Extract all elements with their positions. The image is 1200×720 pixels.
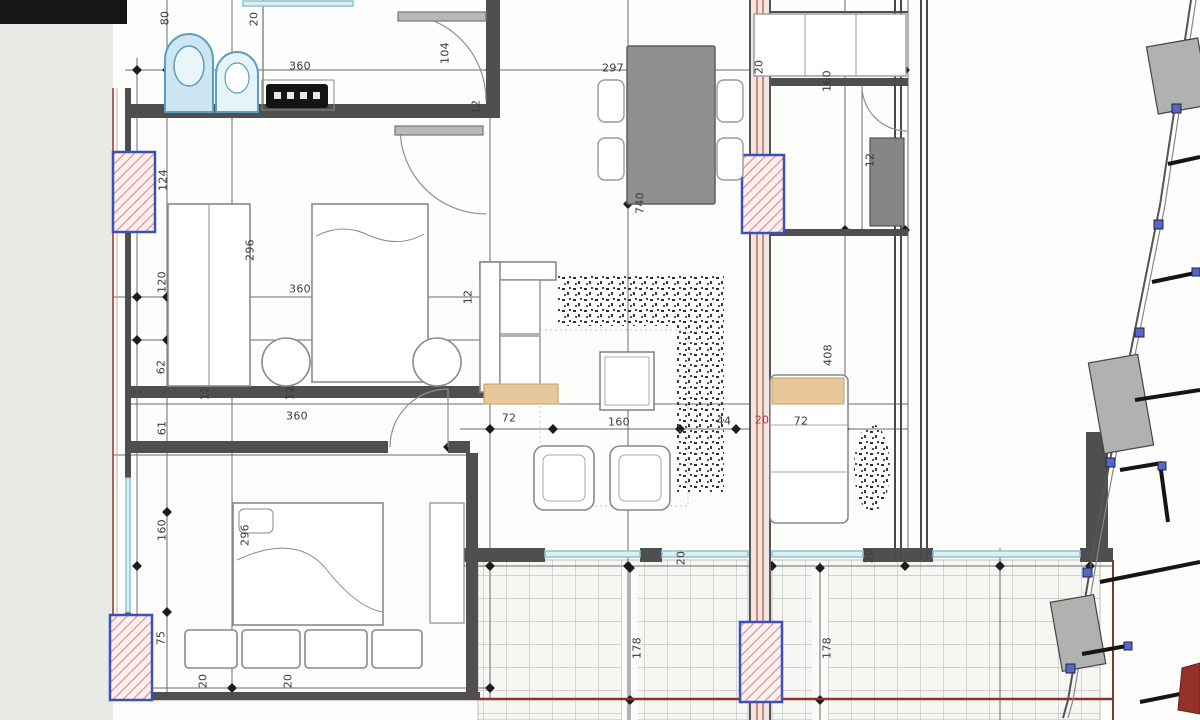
plant bbox=[854, 424, 890, 512]
chair bbox=[717, 138, 743, 180]
closet bbox=[430, 503, 464, 623]
coffee-table bbox=[600, 352, 654, 410]
highlighted-unit-red bbox=[1178, 663, 1200, 714]
bedroom1-furniture bbox=[168, 204, 461, 386]
left-margin bbox=[0, 24, 113, 720]
chair bbox=[598, 80, 624, 122]
top-left-dark-bar bbox=[0, 0, 127, 24]
wardrobe-unit bbox=[305, 630, 367, 668]
sofa-pillow-tan bbox=[772, 378, 844, 404]
nightstand bbox=[262, 338, 310, 386]
floor-plan-svg bbox=[0, 0, 1200, 720]
hall-closet bbox=[754, 14, 906, 76]
tv bbox=[870, 138, 904, 226]
chair bbox=[717, 80, 743, 122]
dining-table bbox=[627, 46, 715, 204]
terrace-tiles bbox=[478, 560, 1100, 720]
wardrobe-unit bbox=[242, 630, 300, 668]
chair bbox=[598, 138, 624, 180]
floor-plan-drawing: 8020360104122972016012740124296121203606… bbox=[0, 0, 1200, 720]
wardrobe-unit bbox=[185, 630, 237, 668]
nightstand bbox=[413, 338, 461, 386]
sofa-side bbox=[480, 262, 500, 392]
plants bbox=[676, 326, 724, 492]
wardrobe-unit bbox=[372, 630, 422, 668]
corridor-wall bbox=[750, 0, 770, 720]
sofa-seat-tan bbox=[484, 384, 558, 404]
plants bbox=[558, 276, 724, 326]
